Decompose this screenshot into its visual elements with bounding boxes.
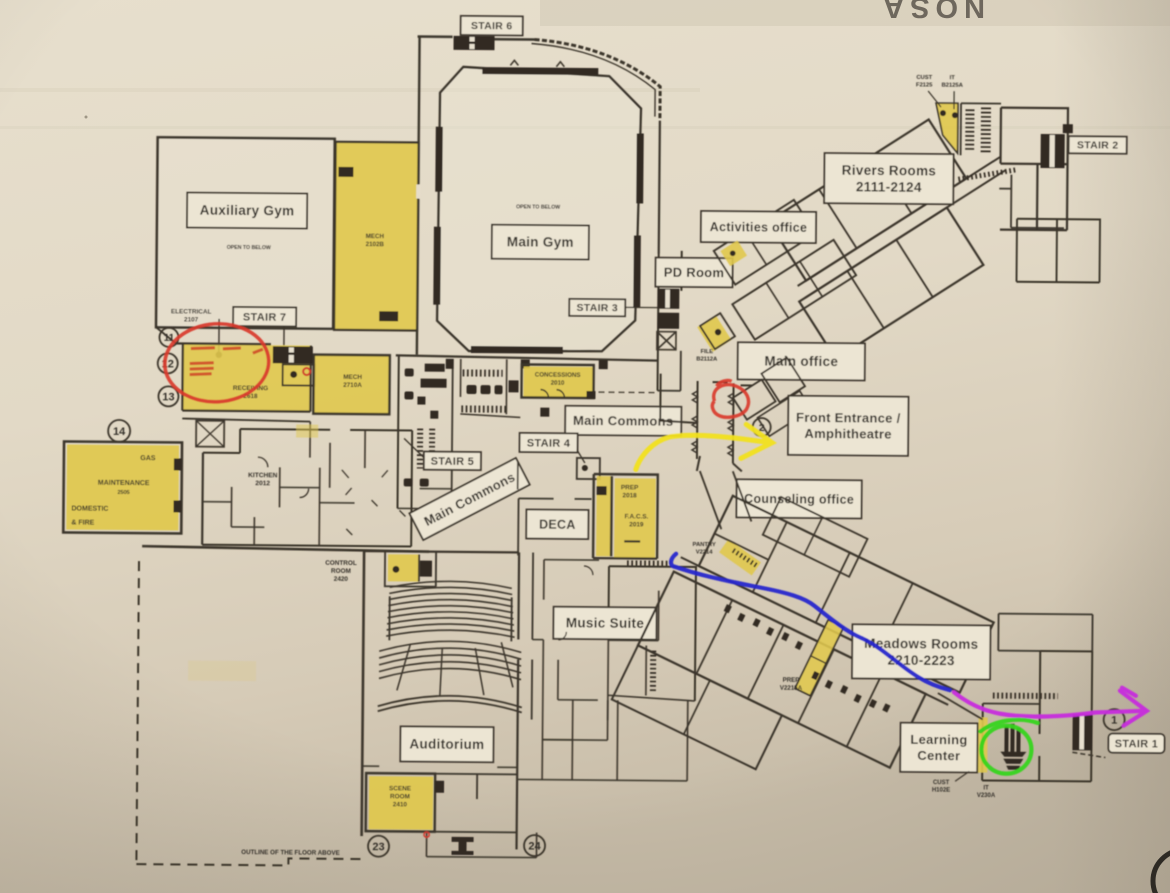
svg-text:PD Room: PD Room	[664, 265, 725, 281]
svg-text:F2125: F2125	[916, 82, 933, 88]
svg-text:ROOM: ROOM	[390, 793, 410, 800]
svg-text:ROOM: ROOM	[331, 568, 351, 575]
svg-text:13: 13	[162, 391, 174, 403]
svg-text:KITCHEN: KITCHEN	[248, 472, 278, 479]
svg-text:2420: 2420	[334, 576, 349, 583]
svg-text:STAIR 4: STAIR 4	[527, 437, 571, 449]
svg-text:OPEN TO BELOW: OPEN TO BELOW	[516, 204, 560, 210]
svg-text:IT: IT	[950, 75, 956, 81]
svg-text:MAINTENANCE: MAINTENANCE	[98, 480, 150, 487]
svg-text:2410: 2410	[393, 801, 408, 808]
svg-text:NOSA: NOSA	[877, 0, 985, 23]
svg-text:IT: IT	[983, 785, 989, 791]
svg-text:OPEN TO BELOW: OPEN TO BELOW	[227, 245, 271, 251]
svg-text:Front Entrance /: Front Entrance /	[796, 410, 901, 426]
svg-text:STAIR 2: STAIR 2	[1077, 139, 1119, 151]
svg-text:STAIR 5: STAIR 5	[431, 456, 475, 468]
svg-text:2107: 2107	[184, 316, 199, 323]
svg-text:Main Commons: Main Commons	[573, 413, 674, 429]
svg-text:2019: 2019	[629, 521, 644, 528]
svg-text:DECA: DECA	[539, 517, 576, 531]
svg-text:STAIR 3: STAIR 3	[576, 302, 618, 314]
svg-text:2111-2124: 2111-2124	[856, 180, 922, 196]
svg-text:Activities office: Activities office	[710, 220, 808, 235]
svg-text:OUTLINE OF THE FLOOR ABOVE: OUTLINE OF THE FLOOR ABOVE	[241, 849, 339, 857]
svg-text:Counseling office: Counseling office	[744, 492, 854, 507]
svg-text:GAS: GAS	[140, 455, 156, 462]
svg-text:Rivers Rooms: Rivers Rooms	[842, 163, 937, 179]
svg-text:2010: 2010	[551, 379, 565, 386]
svg-text:MECH: MECH	[366, 233, 385, 240]
svg-text:& FIRE: & FIRE	[71, 520, 94, 527]
svg-text:F.A.C.S.: F.A.C.S.	[624, 513, 648, 520]
svg-text:B2125A: B2125A	[942, 82, 964, 88]
svg-text:Auxiliary Gym: Auxiliary Gym	[200, 203, 295, 219]
svg-text:24: 24	[528, 840, 541, 852]
svg-text:CONTROL: CONTROL	[325, 560, 357, 567]
svg-text:Music Suite: Music Suite	[566, 616, 645, 632]
svg-text:2505: 2505	[117, 490, 129, 496]
svg-text:MECH: MECH	[343, 374, 362, 381]
svg-text:14: 14	[113, 426, 126, 438]
svg-text:FILE: FILE	[701, 349, 714, 355]
svg-text:PANTRY: PANTRY	[693, 542, 716, 548]
svg-text:2710A: 2710A	[343, 382, 362, 389]
svg-text:Learning: Learning	[910, 732, 967, 747]
svg-text:H102E: H102E	[932, 788, 950, 794]
svg-text:Main office: Main office	[764, 354, 838, 370]
svg-text:23: 23	[372, 841, 384, 853]
svg-text:V2215A: V2215A	[780, 685, 803, 692]
svg-text:PREP: PREP	[783, 677, 800, 684]
svg-text:CONCESSIONS: CONCESSIONS	[535, 372, 581, 379]
svg-text:Main Gym: Main Gym	[507, 235, 574, 251]
svg-text:SCENE: SCENE	[389, 785, 412, 792]
svg-text:2102B: 2102B	[366, 241, 385, 248]
svg-text:2018: 2018	[622, 492, 637, 499]
svg-text:B2112A: B2112A	[696, 356, 718, 362]
svg-text:CUST: CUST	[933, 780, 950, 786]
svg-text:2012: 2012	[255, 480, 270, 487]
svg-text:V230A: V230A	[977, 793, 996, 799]
svg-text:STAIR 1: STAIR 1	[1115, 738, 1159, 750]
svg-text:STAIR 6: STAIR 6	[471, 20, 513, 32]
svg-text:ELECTRICAL: ELECTRICAL	[171, 308, 212, 315]
svg-text:DOMESTIC: DOMESTIC	[71, 506, 108, 513]
svg-text:Center: Center	[917, 748, 960, 763]
svg-text:PREP: PREP	[621, 484, 639, 491]
svg-text:CUST: CUST	[916, 75, 932, 81]
svg-text:Amphitheatre: Amphitheatre	[804, 426, 892, 442]
svg-text:Auditorium: Auditorium	[409, 737, 484, 753]
svg-text:STAIR 7: STAIR 7	[243, 311, 287, 323]
svg-text:1: 1	[1111, 715, 1117, 727]
